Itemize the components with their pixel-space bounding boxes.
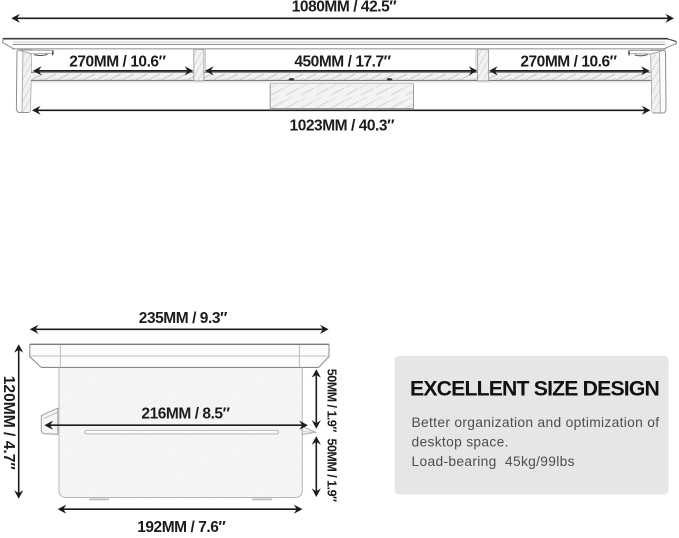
svg-text:270MM / 10.6″: 270MM / 10.6″ xyxy=(520,54,617,71)
svg-text:1080MM / 42.5″: 1080MM / 42.5″ xyxy=(292,0,398,15)
svg-text:216MM / 8.5″: 216MM / 8.5″ xyxy=(141,405,230,422)
svg-text:Load-bearing 45kg/99lbs: Load-bearing 45kg/99lbs xyxy=(412,454,575,469)
svg-text:450MM / 17.7″: 450MM / 17.7″ xyxy=(294,54,391,71)
svg-text:desktop space.: desktop space. xyxy=(412,435,509,450)
svg-text:192MM / 7.6″: 192MM / 7.6″ xyxy=(137,519,226,533)
svg-text:50MM / 1.9″: 50MM / 1.9″ xyxy=(325,369,339,433)
svg-text:1023MM / 40.3″: 1023MM / 40.3″ xyxy=(290,117,396,134)
svg-text:235MM / 9.3″: 235MM / 9.3″ xyxy=(139,310,228,327)
svg-text:270MM / 10.6″: 270MM / 10.6″ xyxy=(69,54,166,71)
svg-text:EXCELLENT SIZE DESIGN: EXCELLENT SIZE DESIGN xyxy=(410,378,659,401)
svg-text:Better organization and optimi: Better organization and optimization of xyxy=(412,415,660,430)
svg-text:120MM / 4.7″: 120MM / 4.7″ xyxy=(0,376,17,471)
svg-text:50MM / 1.9″: 50MM / 1.9″ xyxy=(325,438,339,502)
